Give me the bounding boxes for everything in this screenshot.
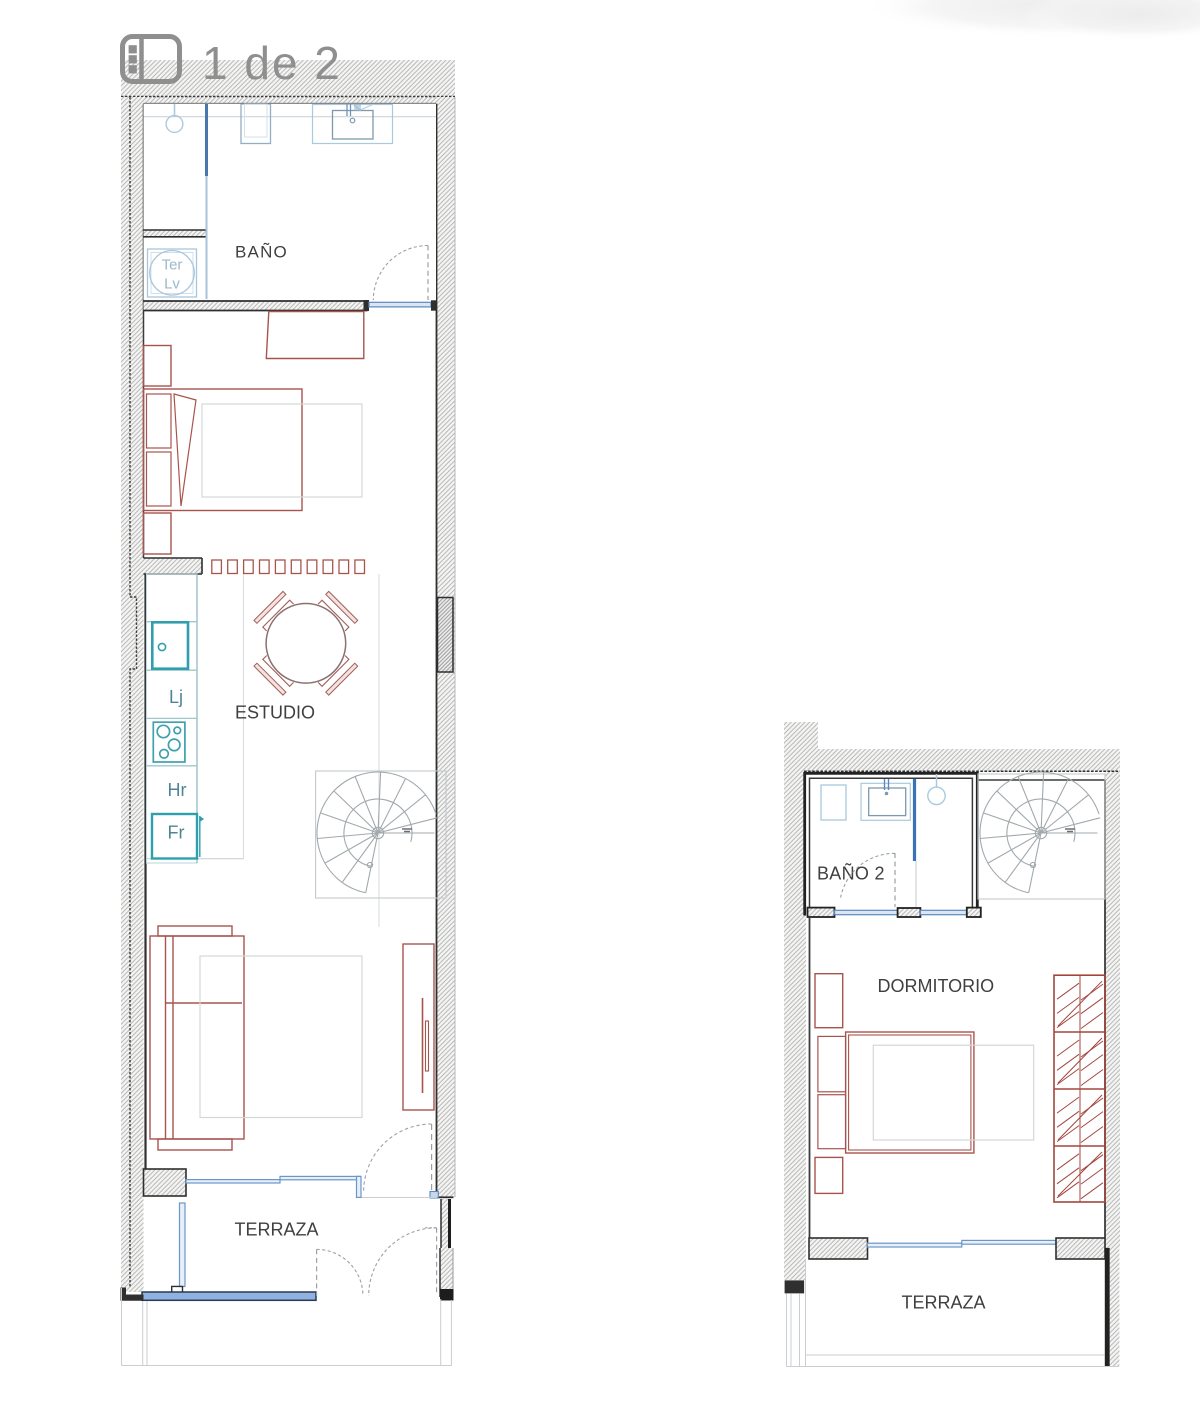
svg-text:Lv: Lv <box>164 276 180 293</box>
svg-text:Ter: Ter <box>162 257 183 274</box>
svg-text:Lj: Lj <box>169 687 183 707</box>
svg-text:DORMITORIO: DORMITORIO <box>878 976 995 996</box>
svg-text:TERRAZA: TERRAZA <box>902 1293 986 1313</box>
svg-text:TERRAZA: TERRAZA <box>235 1220 319 1240</box>
svg-text:BAÑO: BAÑO <box>235 243 288 262</box>
svg-text:ESTUDIO: ESTUDIO <box>235 703 315 723</box>
svg-text:BAÑO 2: BAÑO 2 <box>817 863 885 884</box>
svg-text:Hr: Hr <box>168 780 187 800</box>
svg-text:1 de 2: 1 de 2 <box>202 37 342 89</box>
svg-text:Fr: Fr <box>168 823 185 843</box>
